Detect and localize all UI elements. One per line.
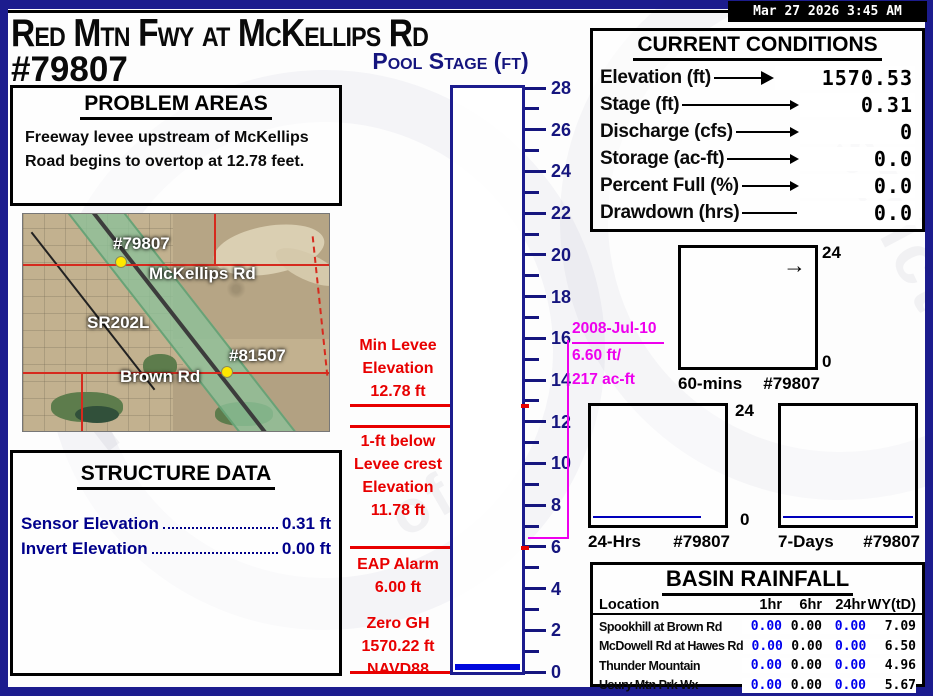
gauge-tick-label: 2: [551, 620, 561, 640]
gauge-tick-label: 22: [551, 203, 571, 223]
chart-24-caption: 24-Hrs #79807: [588, 532, 730, 552]
chart-24-hrs[interactable]: [588, 403, 728, 528]
levee-crest-minus1-line: [350, 425, 450, 428]
threshold-note-line: Min Levee: [345, 334, 451, 357]
leader-line: [742, 212, 797, 214]
basin-rainfall-rows: Spookhill at Brown Rd0.000.000.007.09McD…: [593, 615, 922, 695]
col-header-24hr: 24hr: [822, 597, 866, 613]
problem-areas-title: PROBLEM AREAS: [13, 92, 339, 120]
chart-60-ymin: 0: [822, 352, 831, 372]
zero-gh-note: Zero GH1570.22 ftNAVD88: [345, 612, 451, 681]
pool-stage-title: Pool Stage (ft): [348, 48, 553, 75]
gauge-tick: [525, 316, 539, 319]
gauge-tick: [525, 629, 546, 632]
structure-data-label: Invert Elevation: [21, 539, 148, 559]
col-header-6hr: 6hr: [782, 597, 822, 613]
condition-label: Percent Full (%): [600, 175, 739, 197]
rainfall-row: Spookhill at Brown Rd0.000.000.007.09: [599, 617, 916, 637]
condition-row: Storage (ac-ft)0.0: [600, 145, 915, 172]
chart-24-caption-station: #79807: [673, 532, 730, 552]
condition-row: Elevation (ft)1570.53: [600, 64, 915, 91]
eap-alarm-note: EAP Alarm6.00 ft: [345, 553, 451, 599]
gauge-tick: [525, 650, 539, 653]
arrow-icon: [742, 185, 797, 187]
gauge-tick: [525, 295, 546, 298]
gauge-tick-label: 18: [551, 287, 571, 307]
dotted-leader: [163, 527, 278, 529]
threshold-note-line: Zero GH: [345, 612, 451, 635]
chart-7-days[interactable]: [778, 403, 918, 528]
structure-data-title: STRUCTURE DATA: [13, 462, 339, 490]
basin-rainfall-title: BASIN RAINFALL: [593, 566, 922, 596]
rainfall-value: 0.00: [742, 658, 782, 673]
basin-rainfall-panel: BASIN RAINFALL Location 1hr 6hr 24hr WY(…: [590, 562, 925, 687]
map-label-station-79807: #79807: [113, 234, 170, 254]
station-id: #79807: [11, 50, 128, 90]
historic-event-date: 2008-Jul-10: [572, 317, 664, 344]
threshold-note-line: 1-ft below: [345, 430, 451, 453]
rainfall-location: Spookhill at Brown Rd: [599, 620, 742, 634]
rainfall-value: 0.00: [782, 619, 822, 634]
eap-gauge-mark: [521, 546, 529, 550]
pool-stage-gauge: [450, 85, 525, 675]
threshold-note-line: Elevation: [345, 357, 451, 380]
gauge-tick: [525, 233, 539, 236]
min-levee-line: [350, 404, 450, 407]
col-header-wytd: WY(tD): [866, 597, 916, 613]
gauge-tick: [525, 87, 546, 90]
condition-label: Elevation (ft): [600, 67, 711, 89]
condition-value: 1570.53: [775, 66, 915, 90]
condition-value: 0: [800, 120, 915, 144]
location-map[interactable]: #79807 McKellips Rd SR202L #81507 Brown …: [22, 213, 330, 432]
gauge-status-page: Flood strict of Mar 27 2026 3:45 AM Red …: [0, 0, 933, 696]
rainfall-value: 5.67: [866, 678, 916, 693]
levee-crest-note: 1-ft belowLevee crestElevation11.78 ft: [345, 430, 451, 522]
basin-rainfall-header: Location 1hr 6hr 24hr WY(tD): [593, 597, 922, 615]
problem-areas-panel: PROBLEM AREAS Freeway levee upstream of …: [10, 85, 342, 206]
eap-alarm-line: [350, 546, 450, 549]
gauge-tick: [525, 149, 539, 152]
gauge-tick-label: 20: [551, 245, 571, 265]
gauge-tick: [525, 462, 546, 465]
current-conditions-panel: CURRENT CONDITIONS Elevation (ft)1570.53…: [590, 28, 925, 232]
gauge-tick: [525, 107, 539, 110]
rainfall-row: McDowell Rd at Hawes Rd0.000.000.006.50: [599, 637, 916, 657]
map-section-line: [214, 214, 216, 264]
col-header-1hr: 1hr: [742, 597, 782, 613]
structure-data-row: Invert Elevation0.00 ft: [21, 539, 331, 564]
rainfall-value: 0.00: [822, 619, 866, 634]
arrow-icon: [727, 158, 797, 160]
chart-24-ymin: 0: [740, 510, 749, 530]
historic-event-stage: 6.60 ft/: [572, 344, 664, 368]
rainfall-value: 0.00: [783, 639, 823, 654]
arrow-icon: [714, 77, 772, 79]
rainfall-row: Usury Mtn Prk Wx0.000.000.005.67: [599, 676, 916, 696]
dotted-leader: [152, 552, 278, 554]
structure-data-label: Sensor Elevation: [21, 514, 159, 534]
rainfall-value: 0.00: [743, 639, 783, 654]
threshold-note-line: 6.00 ft: [345, 576, 451, 599]
gauge-tick: [525, 128, 546, 131]
gauge-tick: [525, 504, 546, 507]
gauge-tick-label: 26: [551, 120, 571, 140]
rainfall-location: Usury Mtn Prk Wx: [599, 678, 742, 692]
condition-row: Stage (ft)0.31: [600, 91, 915, 118]
gauge-tick: [525, 525, 539, 528]
chart-24-ymax: 24: [735, 401, 754, 421]
rainfall-value: 0.00: [742, 619, 782, 634]
threshold-note-line: EAP Alarm: [345, 553, 451, 576]
right-arrow-icon: →: [783, 252, 806, 279]
rainfall-location: McDowell Rd at Hawes Rd: [599, 639, 743, 653]
problem-areas-text: Freeway levee upstream of McKellips Road…: [25, 126, 317, 174]
threshold-note-line: 1570.22 ft: [345, 635, 451, 658]
chart-7-caption-name: 7-Days: [778, 532, 834, 552]
structure-data-row: Sensor Elevation0.31 ft: [21, 514, 331, 539]
map-label-mckellips-rd: McKellips Rd: [149, 264, 256, 284]
rainfall-value: 0.00: [782, 658, 822, 673]
water-level-bar: [455, 664, 520, 670]
condition-label: Drawdown (hrs): [600, 202, 739, 224]
gauge-tick: [525, 253, 546, 256]
stage-trace-7day: [783, 516, 913, 518]
gauge-tick: [525, 483, 539, 486]
historic-event-note: 2008-Jul-10 6.60 ft/ 217 ac-ft: [572, 317, 664, 392]
gauge-tick: [525, 566, 539, 569]
gauge-tick: [525, 337, 546, 340]
condition-value: 0.0: [800, 147, 915, 171]
rainfall-value: 0.00: [822, 658, 866, 673]
threshold-note-line: NAVD88: [345, 658, 451, 681]
threshold-note-line: 12.78 ft: [345, 380, 451, 403]
arrow-icon: [682, 104, 797, 106]
map-label-sr202l: SR202L: [87, 313, 149, 333]
condition-value: 0.0: [800, 174, 915, 198]
gauge-tick: [525, 399, 539, 402]
gauge-tick-label: 4: [551, 579, 561, 599]
gauge-tick: [525, 358, 539, 361]
condition-label: Storage (ac-ft): [600, 148, 724, 170]
station-marker-81507[interactable]: [221, 366, 233, 378]
gauge-tick: [525, 608, 539, 611]
gauge-tick: [525, 587, 546, 590]
col-header-location: Location: [599, 597, 742, 613]
min-levee-note: Min LeveeElevation12.78 ft: [345, 334, 451, 403]
rainfall-value: 0.00: [822, 678, 866, 693]
current-conditions-rows: Elevation (ft)1570.53Stage (ft)0.31Disch…: [600, 64, 915, 226]
gauge-tick: [525, 379, 546, 382]
stage-trace-24hr: [593, 516, 701, 518]
min-levee-gauge-mark: [521, 404, 529, 408]
structure-data-rows: Sensor Elevation0.31 ftInvert Elevation0…: [21, 514, 331, 564]
gauge-tick: [525, 441, 539, 444]
rainfall-row: Thunder Mountain0.000.000.004.96: [599, 656, 916, 676]
rainfall-value: 6.50: [866, 639, 916, 654]
station-marker-79807[interactable]: [115, 256, 127, 268]
gauge-tick-label: 28: [551, 78, 571, 98]
chart-60-caption-station: #79807: [763, 374, 820, 394]
rainfall-value: 0.00: [742, 678, 782, 693]
gauge-tick-label: 8: [551, 495, 561, 515]
gauge-tick-label: 24: [551, 161, 571, 181]
rainfall-value: 4.96: [866, 658, 916, 673]
structure-data-value: 0.00 ft: [282, 539, 331, 559]
chart-60-ymax: 24: [822, 243, 841, 263]
gauge-tick: [525, 274, 539, 277]
condition-row: Percent Full (%)0.0: [600, 172, 915, 199]
gauge-tick: [525, 671, 546, 674]
rainfall-location: Thunder Mountain: [599, 659, 742, 673]
map-label-brown-rd: Brown Rd: [120, 367, 200, 387]
chart-60-mins[interactable]: →: [678, 245, 818, 370]
condition-label: Discharge (cfs): [600, 121, 733, 143]
historic-event-volume: 217 ac-ft: [572, 368, 664, 392]
rainfall-value: 0.00: [823, 639, 867, 654]
rainfall-value: 0.00: [782, 678, 822, 693]
chart-24-caption-name: 24-Hrs: [588, 532, 641, 552]
condition-label: Stage (ft): [600, 94, 679, 116]
threshold-note-line: Levee crest: [345, 453, 451, 476]
structure-data-value: 0.31 ft: [282, 514, 331, 534]
timestamp: Mar 27 2026 3:45 AM: [728, 1, 927, 22]
map-section-line: [81, 372, 83, 432]
chart-7-caption-station: #79807: [863, 532, 920, 552]
gauge-tick: [525, 420, 546, 423]
chart-7-caption: 7-Days #79807: [778, 532, 920, 552]
chart-60-caption: 60-mins #79807: [678, 374, 820, 394]
condition-row: Drawdown (hrs)0.0: [600, 199, 915, 226]
condition-value: 0.0: [800, 201, 915, 225]
condition-row: Discharge (cfs)0: [600, 118, 915, 145]
gauge-tick: [525, 212, 546, 215]
current-conditions-title: CURRENT CONDITIONS: [593, 33, 922, 61]
chart-60-caption-name: 60-mins: [678, 374, 742, 394]
gauge-tick: [525, 170, 546, 173]
arrow-icon: [736, 131, 797, 133]
threshold-note-line: 11.78 ft: [345, 499, 451, 522]
gauge-tick-label: 6: [551, 537, 561, 557]
rainfall-value: 7.09: [866, 619, 916, 634]
map-label-station-81507: #81507: [229, 346, 286, 366]
historic-event-bracket: [528, 537, 569, 539]
condition-value: 0.31: [800, 93, 915, 117]
structure-data-panel: STRUCTURE DATA Sensor Elevation0.31 ftIn…: [10, 450, 342, 676]
gauge-tick-label: 0: [551, 662, 561, 682]
threshold-note-line: Elevation: [345, 476, 451, 499]
historic-event-bracket: [567, 340, 569, 538]
gauge-tick: [525, 191, 539, 194]
